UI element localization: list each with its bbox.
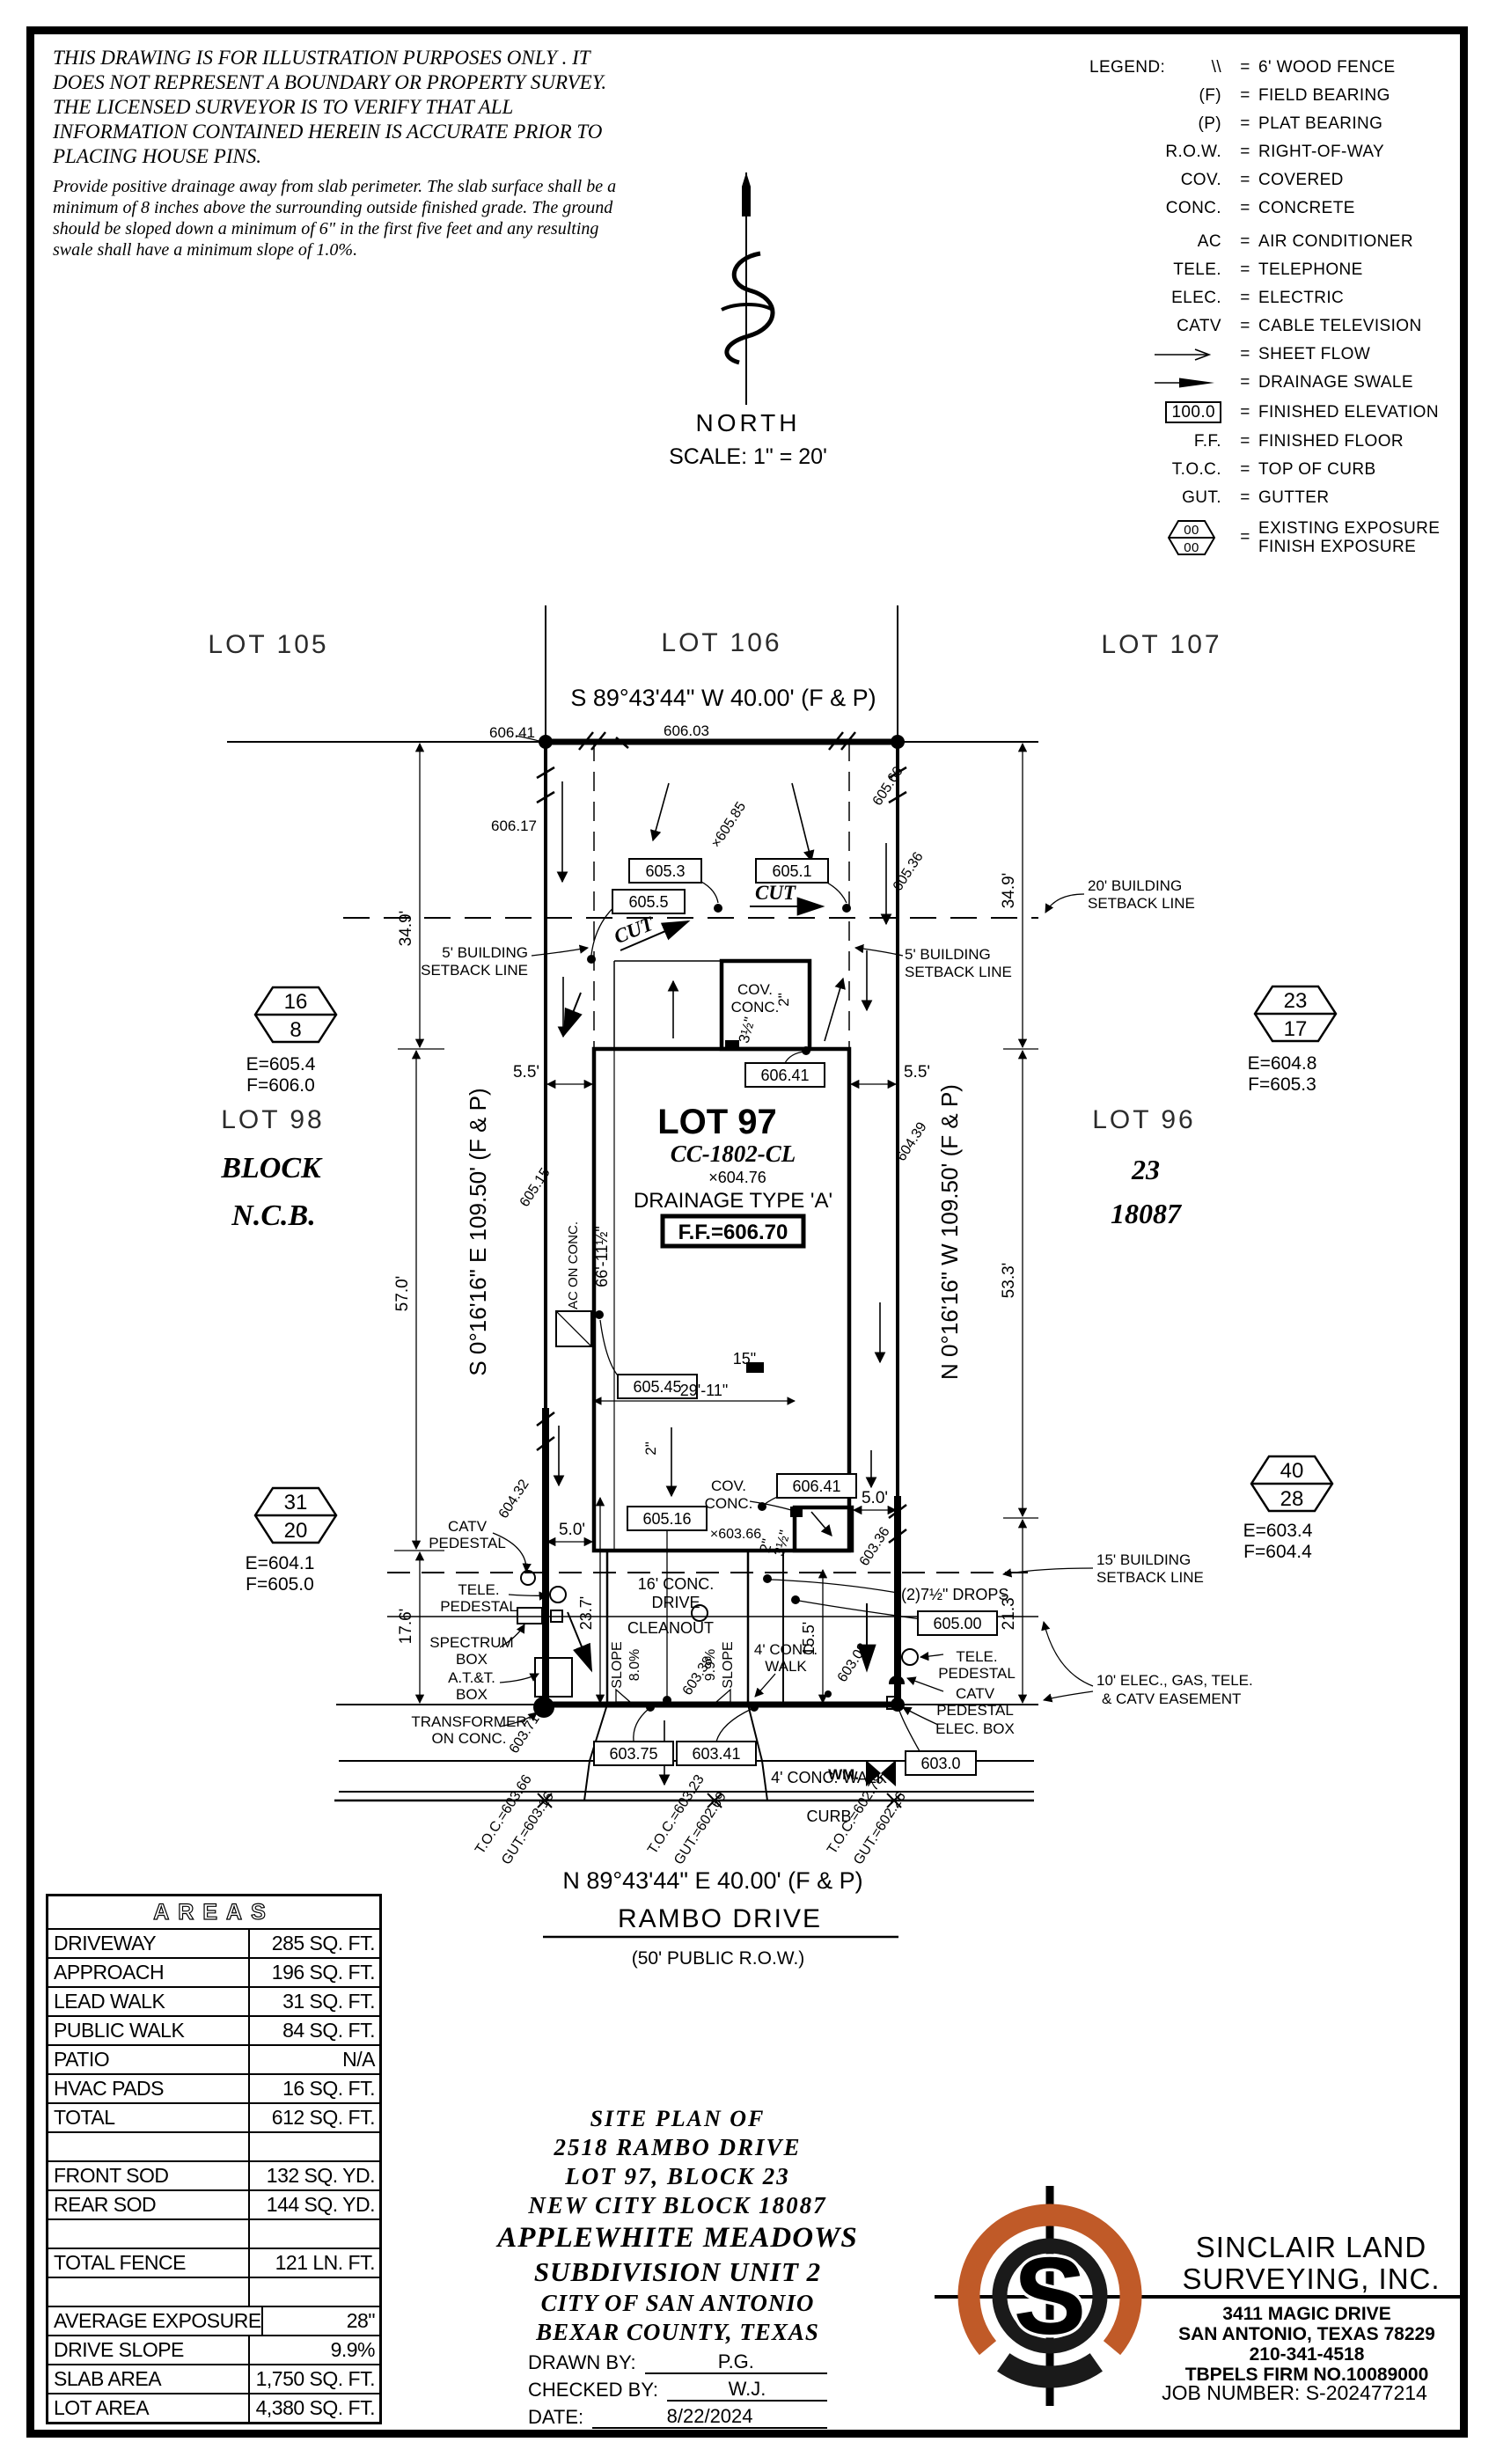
- elev-605-45: 605.45: [633, 1378, 681, 1396]
- svg-text:17: 17: [1284, 1017, 1308, 1041]
- block-23-label: 23: [1131, 1154, 1160, 1185]
- bearing-south-line: N 89°43'44" E 40.00' (F & P): [562, 1867, 862, 1894]
- svg-text:SETBACK LINE: SETBACK LINE: [905, 964, 1012, 980]
- lot-105-label: LOT 105: [208, 630, 328, 659]
- table-row: AVERAGE EXPOSURE28": [48, 2307, 379, 2336]
- svg-text:WALK: WALK: [765, 1658, 807, 1675]
- svg-text:5' BUILDING: 5' BUILDING: [442, 944, 528, 961]
- svg-text:SETBACK LINE: SETBACK LINE: [1096, 1569, 1204, 1586]
- catv-pedestal-right-symbol: [890, 1676, 904, 1683]
- svg-text:TELE.: TELE.: [956, 1648, 997, 1665]
- svg-text:17.6': 17.6': [397, 1609, 415, 1645]
- svg-text:605.15: 605.15: [517, 1165, 554, 1209]
- table-row: REAR SOD144 SQ. YD.: [48, 2191, 379, 2220]
- svg-text:40: 40: [1280, 1459, 1304, 1483]
- svg-text:603.36: 603.36: [857, 1524, 893, 1568]
- elev-606-17: 606.17: [491, 818, 537, 834]
- bearing-east-line: N 0°16'16" W 109.50' (F & P): [936, 1084, 963, 1380]
- elev-605-00: 605.00: [933, 1615, 981, 1632]
- table-row: [48, 2133, 379, 2162]
- svg-text:PEDESTAL: PEDESTAL: [440, 1598, 517, 1615]
- svg-text:28: 28: [1280, 1487, 1304, 1511]
- svg-text:ELEC. BOX: ELEC. BOX: [935, 1720, 1015, 1737]
- elev-603-75: 603.75: [609, 1745, 657, 1763]
- svg-text:605.66: 605.66: [870, 764, 906, 808]
- svg-text:5.5': 5.5': [513, 1063, 539, 1082]
- svg-text:603.08: 603.08: [835, 1640, 871, 1684]
- svg-text:COV.: COV.: [737, 981, 773, 998]
- elev-603-0: 603.0: [920, 1755, 960, 1772]
- title-line-2: 2518 RAMBO DRIVE: [458, 2133, 898, 2162]
- svg-text:2": 2": [642, 1441, 659, 1456]
- svg-text:3½": 3½": [771, 1529, 794, 1558]
- north-label: NORTH: [695, 409, 800, 436]
- elev-605-3: 605.3: [645, 862, 685, 880]
- title-line-3: LOT 97, BLOCK 23: [458, 2162, 898, 2191]
- spectrum-box-symbol: [517, 1608, 542, 1624]
- areas-table-title: AREAS: [48, 1896, 379, 1930]
- transformer-symbol: [533, 1697, 554, 1718]
- elev-606-41-rear: 606.41: [760, 1067, 809, 1084]
- svg-text:DRIVE: DRIVE: [651, 1594, 700, 1611]
- lot-97-label: LOT 97: [657, 1103, 777, 1141]
- elev-603-41: 603.41: [692, 1745, 740, 1763]
- subdivision-unit: SUBDIVISION UNIT 2: [458, 2255, 898, 2289]
- svg-text:E=604.8: E=604.8: [1248, 1053, 1317, 1074]
- table-row: FRONT SOD132 SQ. YD.: [48, 2162, 379, 2191]
- svg-text:3½": 3½": [736, 1016, 759, 1045]
- plan-geometry: [227, 605, 1093, 1937]
- svg-text:BOX: BOX: [456, 1651, 488, 1668]
- job-number: JOB NUMBER: S-202477214: [1111, 2381, 1478, 2405]
- table-row: [48, 2220, 379, 2249]
- svg-text:SLOPE: SLOPE: [721, 1641, 736, 1688]
- svg-text:8: 8: [290, 1018, 301, 1042]
- svg-text:×603.66: ×603.66: [710, 1527, 761, 1542]
- svg-text:23: 23: [1284, 989, 1308, 1013]
- tele-pedestal-symbol: [550, 1587, 566, 1602]
- svg-text:15": 15": [733, 1350, 756, 1368]
- checked-by-value: W.J.: [667, 2379, 827, 2402]
- svg-text:57.0': 57.0': [393, 1276, 412, 1312]
- subdivision-name: APPLEWHITE MEADOWS: [458, 2220, 898, 2255]
- model-label: CC-1802-CL: [671, 1140, 796, 1167]
- drawn-by-value: P.G.: [645, 2351, 827, 2374]
- svg-text:20: 20: [284, 1519, 308, 1543]
- lot-107-label: LOT 107: [1101, 630, 1221, 659]
- drainage-type-label: DRAINAGE TYPE 'A': [634, 1189, 832, 1213]
- date-row: DATE: 8/22/2024: [528, 2406, 827, 2429]
- elev-605-16: 605.16: [642, 1510, 691, 1528]
- svg-text:15' BUILDING: 15' BUILDING: [1096, 1551, 1191, 1568]
- svg-text:ON CONC.: ON CONC.: [432, 1730, 507, 1747]
- svg-text:53.3': 53.3': [1000, 1263, 1018, 1299]
- ac-on-conc-label: AC ON CONC.: [566, 1221, 581, 1309]
- firm-address: 3411 MAGIC DRIVE SAN ANTONIO, TEXAS 7822…: [1135, 2304, 1478, 2385]
- ncb-18087-label: 18087: [1111, 1198, 1183, 1229]
- svg-text:F=605.3: F=605.3: [1248, 1074, 1316, 1095]
- svg-text:A.T.&T.: A.T.&T.: [448, 1669, 495, 1686]
- easement-label-2: & CATV EASEMENT: [1102, 1690, 1241, 1707]
- table-row: PUBLIC WALK84 SQ. FT.: [48, 2017, 379, 2046]
- cut-label-2: CUT: [611, 912, 657, 948]
- svg-text:TRANSFORMER: TRANSFORMER: [411, 1713, 526, 1730]
- areas-table: AREAS DRIVEWAY285 SQ. FT. APPROACH196 SQ…: [46, 1894, 382, 2424]
- svg-text:34.9': 34.9': [1000, 873, 1018, 909]
- svg-text:×605.85: ×605.85: [708, 799, 749, 850]
- sinclair-logo: S: [935, 2181, 1165, 2411]
- svg-text:29'-11": 29'-11": [680, 1382, 729, 1399]
- block-label: BLOCK: [220, 1152, 323, 1184]
- pad-elevation: ×604.76: [708, 1169, 766, 1186]
- bearing-west-line: S 0°16'16" E 109.50' (F & P): [465, 1088, 491, 1375]
- county-line: BEXAR COUNTY, TEXAS: [458, 2318, 898, 2347]
- svg-text:PEDESTAL: PEDESTAL: [429, 1535, 506, 1551]
- svg-text:20' BUILDING: 20' BUILDING: [1088, 877, 1182, 894]
- date-value: 8/22/2024: [592, 2406, 827, 2429]
- svg-text:5.0': 5.0': [862, 1489, 888, 1507]
- svg-text:CONC.: CONC.: [705, 1495, 753, 1512]
- svg-text:9.9%: 9.9%: [703, 1649, 718, 1681]
- site-plan-sheet: THIS DRAWING IS FOR ILLUSTRATION PURPOSE…: [0, 0, 1496, 2464]
- table-row: LOT AREA4,380 SQ. FT.: [48, 2394, 379, 2422]
- svg-text:PEDESTAL: PEDESTAL: [936, 1702, 1014, 1719]
- checked-by-row: CHECKED BY: W.J.: [528, 2379, 827, 2402]
- elev-606-03: 606.03: [664, 722, 709, 739]
- elev-605-1: 605.1: [772, 862, 811, 880]
- svg-text:5' BUILDING: 5' BUILDING: [905, 946, 991, 963]
- svg-text:F=605.0: F=605.0: [246, 1574, 314, 1595]
- svg-text:SLOPE: SLOPE: [610, 1641, 625, 1688]
- logo-letter: S: [1014, 2236, 1087, 2358]
- table-row: [48, 2278, 379, 2307]
- street-row: (50' PUBLIC R.O.W.): [632, 1948, 805, 1969]
- easement-label-1: 10' ELEC., GAS, TELE.: [1096, 1672, 1253, 1689]
- svg-text:SETBACK LINE: SETBACK LINE: [1088, 895, 1195, 912]
- table-row: TOTAL612 SQ. FT.: [48, 2104, 379, 2133]
- firm-name: SINCLAIR LAND SURVEYING, INC.: [1149, 2232, 1473, 2295]
- table-row: PATION/A: [48, 2046, 379, 2075]
- front-covered-porch: [795, 1507, 852, 1551]
- lot-96-label: LOT 96: [1092, 1105, 1196, 1134]
- lot-106-label: LOT 106: [661, 628, 781, 657]
- table-row: APPROACH196 SQ. FT.: [48, 1959, 379, 1988]
- cleanout-label: CLEANOUT: [627, 1619, 714, 1637]
- svg-text:SPECTRUM: SPECTRUM: [429, 1634, 513, 1651]
- title-block: SITE PLAN OF 2518 RAMBO DRIVE LOT 97, BL…: [458, 2105, 898, 2429]
- svg-text:16: 16: [284, 990, 308, 1014]
- city-line: CITY OF SAN ANTONIO: [458, 2289, 898, 2318]
- svg-text:BOX: BOX: [456, 1686, 488, 1703]
- svg-text:CATV: CATV: [448, 1518, 488, 1535]
- svg-text:E=604.1: E=604.1: [246, 1553, 315, 1573]
- svg-text:TELE.: TELE.: [458, 1581, 499, 1598]
- table-row: SLAB AREA1,750 SQ. FT.: [48, 2365, 379, 2394]
- table-row: HVAC PADS16 SQ. FT.: [48, 2075, 379, 2104]
- table-row: LEAD WALK31 SQ. FT.: [48, 1988, 379, 2017]
- svg-text:CONC.: CONC.: [731, 999, 780, 1016]
- title-line-1: SITE PLAN OF: [458, 2105, 898, 2133]
- title-line-4: NEW CITY BLOCK 18087: [458, 2191, 898, 2220]
- svg-text:PEDESTAL: PEDESTAL: [938, 1665, 1016, 1682]
- north-arrow-icon: [722, 172, 773, 405]
- bearing-north-line: S 89°43'44" W 40.00' (F & P): [570, 685, 876, 711]
- svg-text:23.7': 23.7': [577, 1596, 595, 1630]
- svg-text:16' CONC.: 16' CONC.: [638, 1575, 714, 1593]
- svg-text:CATV: CATV: [956, 1685, 995, 1702]
- svg-text:SETBACK LINE: SETBACK LINE: [421, 962, 528, 979]
- drops-label: (2)7½" DROPS: [901, 1586, 1008, 1603]
- ncb-label: N.C.B.: [231, 1199, 315, 1232]
- svg-text:COV.: COV.: [711, 1478, 746, 1494]
- svg-text:8.0%: 8.0%: [627, 1649, 642, 1681]
- table-row: TOTAL FENCE121 LN. FT.: [48, 2249, 379, 2278]
- att-box-symbol: [535, 1658, 572, 1697]
- table-row: DRIVEWAY285 SQ. FT.: [48, 1930, 379, 1959]
- svg-text:F=606.0: F=606.0: [246, 1075, 315, 1096]
- lot-98-label: LOT 98: [221, 1105, 325, 1134]
- firm-phone: 210-341-4518: [1135, 2344, 1478, 2365]
- scale-label: SCALE: 1" = 20': [669, 444, 827, 469]
- elev-606-41-corner: 606.41: [489, 724, 535, 741]
- svg-text:34.9': 34.9': [397, 911, 415, 947]
- svg-text:5.5': 5.5': [904, 1063, 930, 1082]
- svg-text:605.36: 605.36: [891, 849, 927, 893]
- svg-text:4' CONC.: 4' CONC.: [754, 1641, 818, 1658]
- tele-pedestal-right-symbol: [902, 1649, 918, 1665]
- svg-text:E=603.4: E=603.4: [1243, 1521, 1313, 1541]
- utility-symbols: [517, 1571, 918, 1709]
- elev-605-5: 605.5: [628, 893, 668, 911]
- street-name: RAMBO DRIVE: [618, 1904, 822, 1933]
- cut-label-1: CUT: [755, 882, 796, 904]
- svg-text:66'-11½": 66'-11½": [593, 1226, 611, 1287]
- elev-606-41-front: 606.41: [792, 1478, 840, 1495]
- finished-floor-label: F.F.=606.70: [678, 1221, 788, 1244]
- svg-text:5.0': 5.0': [559, 1521, 585, 1539]
- drawn-by-row: DRAWN BY: P.G.: [528, 2351, 827, 2374]
- table-row: DRIVE SLOPE9.9%: [48, 2336, 379, 2365]
- svg-text:F=604.4: F=604.4: [1243, 1542, 1312, 1562]
- svg-text:31: 31: [284, 1491, 308, 1514]
- svg-text:604.32: 604.32: [496, 1477, 532, 1521]
- svg-text:E=605.4: E=605.4: [246, 1054, 316, 1074]
